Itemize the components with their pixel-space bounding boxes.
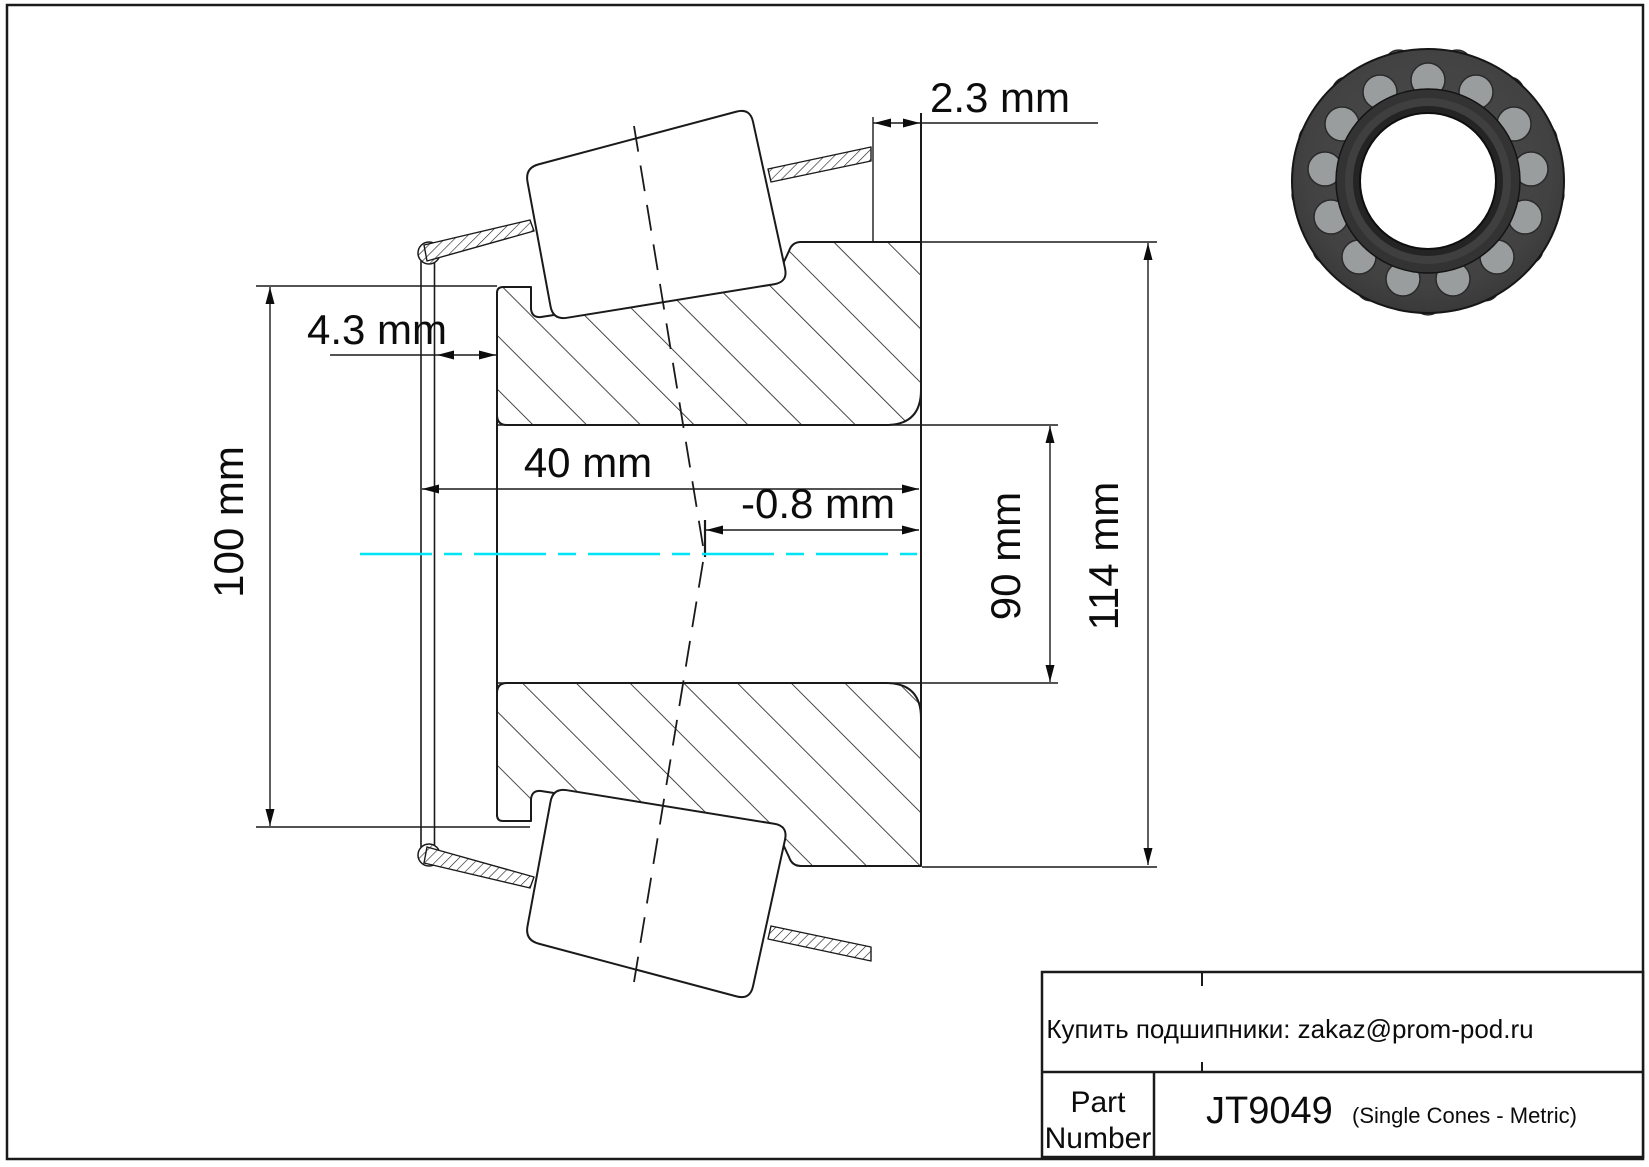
series-note: (Single Cones - Metric) xyxy=(1352,1103,1577,1128)
dim-label-effective-center: -0.8 mm xyxy=(741,480,895,527)
title-block: Купить подшипники: zakaz@prom-pod.ru Par… xyxy=(1042,972,1643,1157)
dim-label-back-protrusion: 2.3 mm xyxy=(930,74,1070,121)
cage-strip-bottom-left xyxy=(418,844,534,888)
part-label-line1: Part xyxy=(1070,1086,1126,1119)
dimension-outer-rib-od: 114 mm xyxy=(922,242,1157,867)
dim-label-front-gap: 4.3 mm xyxy=(307,306,447,353)
drawing-sheet: 2.3 mm 4.3 mm 40 mm -0.8 mm xyxy=(0,0,1649,1167)
part-label-line2: Number xyxy=(1045,1122,1152,1155)
roller-bottom xyxy=(527,790,785,997)
dimension-effective-center: -0.8 mm xyxy=(706,480,919,535)
dimension-back-protrusion: 2.3 mm xyxy=(873,74,1098,242)
cage-strip-bottom-right xyxy=(768,926,871,961)
cage-strip-top-right xyxy=(768,147,871,182)
dim-label-bore: 90 mm xyxy=(982,492,1029,620)
technical-drawing-canvas: 2.3 mm 4.3 mm 40 mm -0.8 mm xyxy=(0,0,1649,1167)
bearing-photo-bore-hole xyxy=(1360,113,1496,249)
cage-strip-top-left xyxy=(418,220,534,264)
dim-label-flange-od: 100 mm xyxy=(205,446,252,598)
bearing-photo xyxy=(1292,49,1564,315)
dimension-front-gap: 4.3 mm xyxy=(307,306,496,360)
contact-email-text: Купить подшипники: zakaz@prom-pod.ru xyxy=(1046,1014,1533,1044)
dimension-bore: 90 mm xyxy=(982,426,1055,682)
roller-top xyxy=(527,111,785,318)
dim-label-cone-width: 40 mm xyxy=(524,439,652,486)
part-number-value: JT9049 xyxy=(1206,1090,1333,1132)
dimension-flange-od: 100 mm xyxy=(205,286,530,827)
dim-label-outer-rib-od: 114 mm xyxy=(1080,482,1127,631)
cross-section-view xyxy=(360,111,1058,997)
